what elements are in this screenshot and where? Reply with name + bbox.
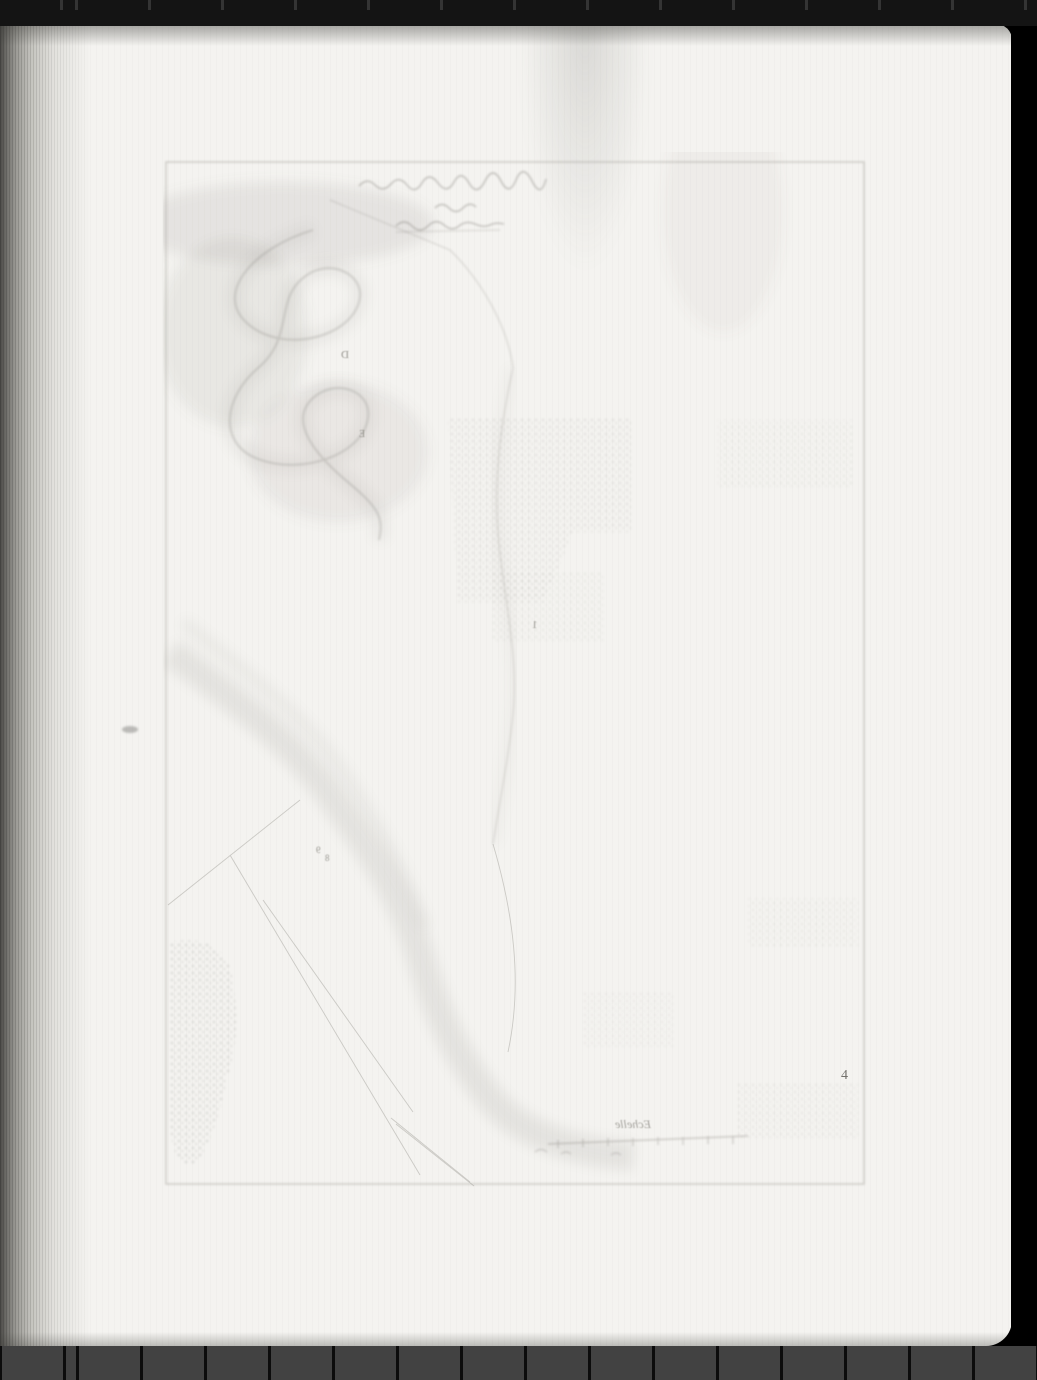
scale-label: Echelle: [615, 1118, 651, 1130]
book-page: D E 1 9 8 Echelle 4: [0, 24, 1012, 1346]
film-strip-bottom: [0, 1346, 1037, 1380]
map-letter-E: E: [359, 430, 365, 440]
page-bottom-shadow: [0, 1332, 1012, 1346]
page-top-shadow: [0, 24, 1012, 46]
vegetation-stipple: [171, 940, 236, 1164]
map-letter-1: 1: [532, 620, 538, 631]
microfilm-scan-frame: D E 1 9 8 Echelle 4: [0, 0, 1037, 1380]
scan-right-gutter: [1011, 0, 1037, 1380]
map-plate-graphics: [163, 152, 868, 1192]
film-strip-top-ticks: [0, 0, 1037, 10]
map-letter-9: 9: [316, 846, 321, 855]
book-spine-streaks: [0, 24, 90, 1346]
valley-shading-band: [171, 622, 633, 1156]
plate-number: 4: [841, 1068, 848, 1084]
map-letter-D: D: [341, 350, 349, 361]
film-strip-top: [0, 0, 1037, 26]
town-blocks-stipple: [448, 417, 858, 1140]
map-letter-8: 8: [325, 854, 330, 863]
map-plate-bleedthrough: D E 1 9 8 Echelle 4: [163, 152, 868, 1192]
paper-speck: [122, 726, 138, 733]
